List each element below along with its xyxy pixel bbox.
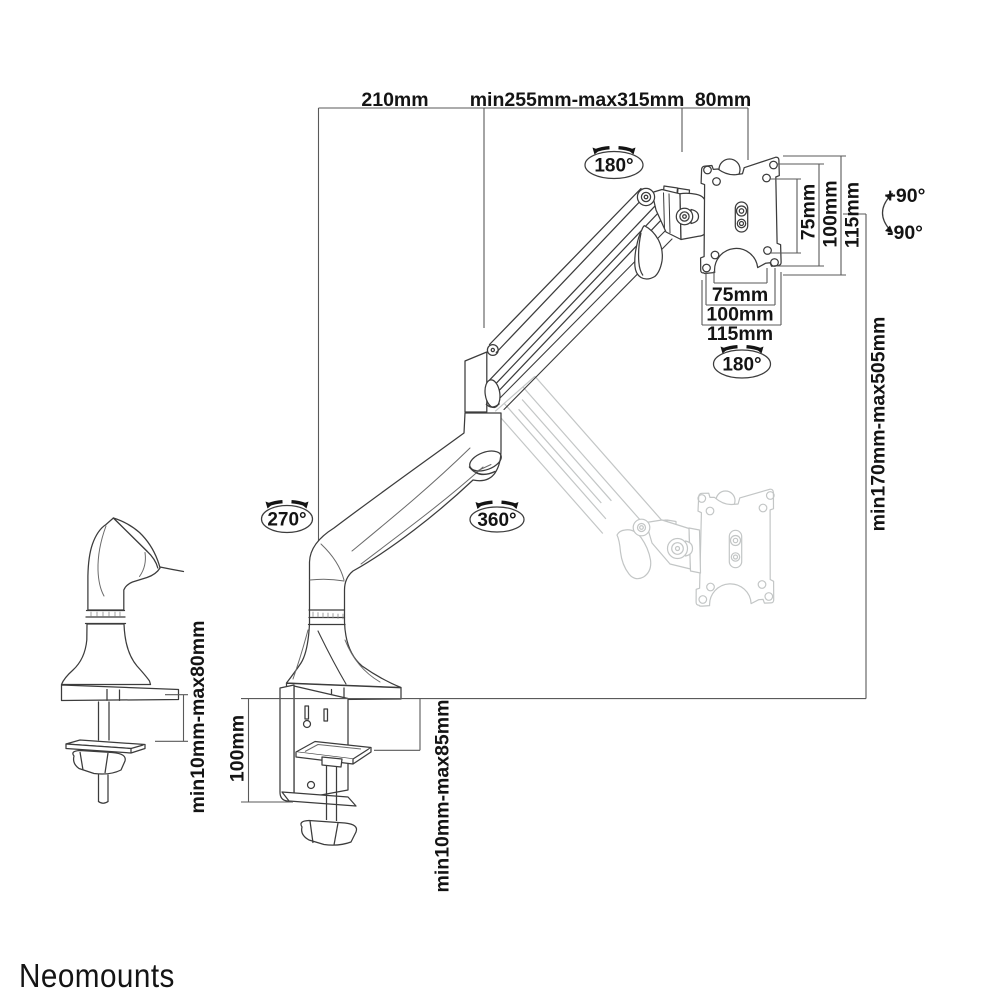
svg-text:min10mm-max85mm: min10mm-max85mm xyxy=(432,700,454,893)
svg-text:80mm: 80mm xyxy=(695,89,751,111)
svg-text:Neomounts: Neomounts xyxy=(19,958,175,995)
svg-text:min255mm-max315mm: min255mm-max315mm xyxy=(470,89,685,111)
svg-text:100mm: 100mm xyxy=(227,715,249,782)
svg-text:75mm: 75mm xyxy=(798,184,820,240)
svg-text:210mm: 210mm xyxy=(361,89,428,111)
svg-text:115mm: 115mm xyxy=(842,182,864,248)
svg-text:270°: 270° xyxy=(267,510,306,531)
svg-text:180°: 180° xyxy=(594,156,633,177)
svg-text:min10mm-max80mm: min10mm-max80mm xyxy=(187,621,209,814)
svg-text:360°: 360° xyxy=(477,510,516,531)
svg-text:-90°: -90° xyxy=(887,222,923,244)
svg-text:180°: 180° xyxy=(722,355,761,376)
svg-text:min170mm-max505mm: min170mm-max505mm xyxy=(868,317,890,532)
svg-text:+90°: +90° xyxy=(885,185,926,207)
svg-text:115mm: 115mm xyxy=(707,323,773,345)
svg-text:100mm: 100mm xyxy=(820,180,842,247)
